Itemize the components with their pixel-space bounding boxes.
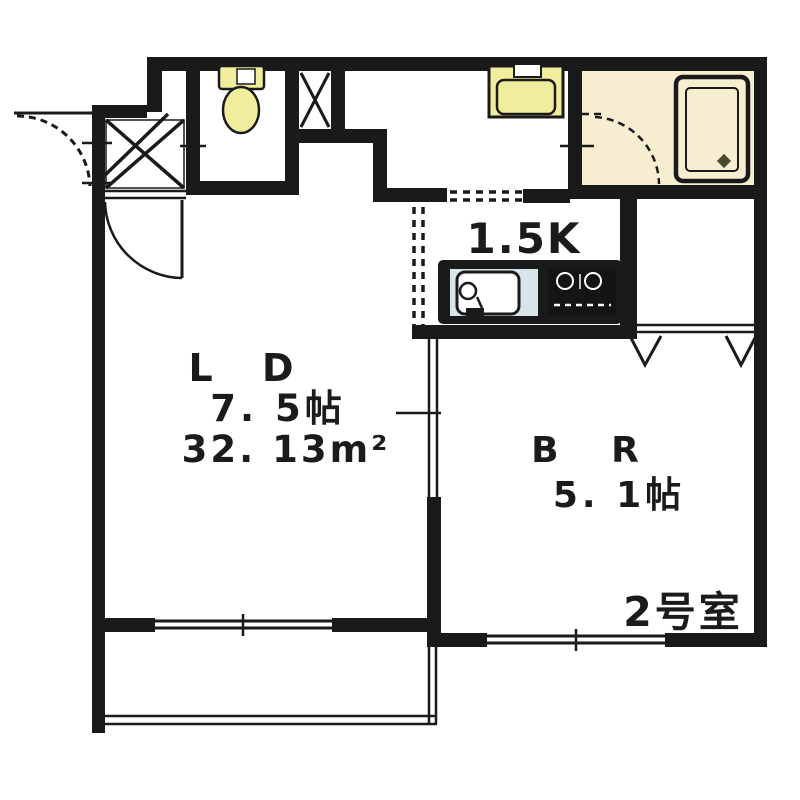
wall-step-vertical [373,129,387,202]
closet-rail [637,325,754,332]
genkan-step-edge [105,191,186,198]
wall-closet-left [620,199,637,339]
bedroom-size: 5. 1帖 [553,475,685,516]
living-dining-area-value: 32. 13 [182,428,330,471]
toilet-fixture [219,66,264,133]
genkan-x-mark [100,114,184,188]
wall-bath-left [568,57,582,199]
wall-toilet-right [285,57,299,192]
bathtub-inner [686,88,738,171]
bedroom-label: B R [531,430,659,471]
washer-tap [514,64,541,77]
wall-kitchen-top-right [523,189,570,203]
wall-ld-bottom-right [332,618,434,632]
wall-left [92,105,105,733]
gas-stove-fixture [548,269,616,316]
closet-folding-door-mark-left [630,336,661,365]
wall-toilet-bottom [186,181,299,195]
wall-br-bottom-left [434,633,487,647]
floorplan-image: 1.5K L D 7. 5帖 32. 13m² B R 5. 1帖 2号室 [0,0,800,800]
closet-folding-door-mark-right [726,336,756,365]
washer-body [497,80,555,114]
wall-toilet-left [186,57,200,195]
hall-door-arc [105,202,182,278]
sink-faucet [460,283,476,299]
wall-ld-bottom-left [92,618,155,632]
wall-kitchen-bottom [412,325,624,339]
wall-bath-bottom [570,185,767,199]
accordion-door-dashed-vertical [414,207,423,330]
bathtub-fixture [676,77,748,181]
kitchen-label: 1.5K [467,214,582,263]
toilet-bowl [223,87,259,133]
pipe-space-x-mark [301,73,329,127]
living-dining-area-unit: m² [330,428,391,471]
sink-drain [466,308,484,323]
sliding-door [429,339,437,497]
room-number-label: 2号室 [623,588,743,636]
living-dining-label: L D [189,346,312,390]
balcony-rail [105,716,437,724]
living-dining-size: 7. 5帖 [210,387,345,430]
wall-entry-stub [147,57,162,112]
toilet-tank-lid [237,69,255,84]
living-dining-area: 32. 13m² [182,428,391,471]
kitchen-sink-fixture [450,269,538,323]
wall-kitchen-top-left [387,188,447,202]
washing-machine-fixture [489,64,563,117]
kitchen-opening-dashed-horizontal [450,192,523,200]
entrance-door-arc [17,116,90,186]
floor-plan-svg: 1.5K L D 7. 5帖 32. 13m² B R 5. 1帖 2号室 [0,0,800,800]
wall-right [754,57,767,647]
